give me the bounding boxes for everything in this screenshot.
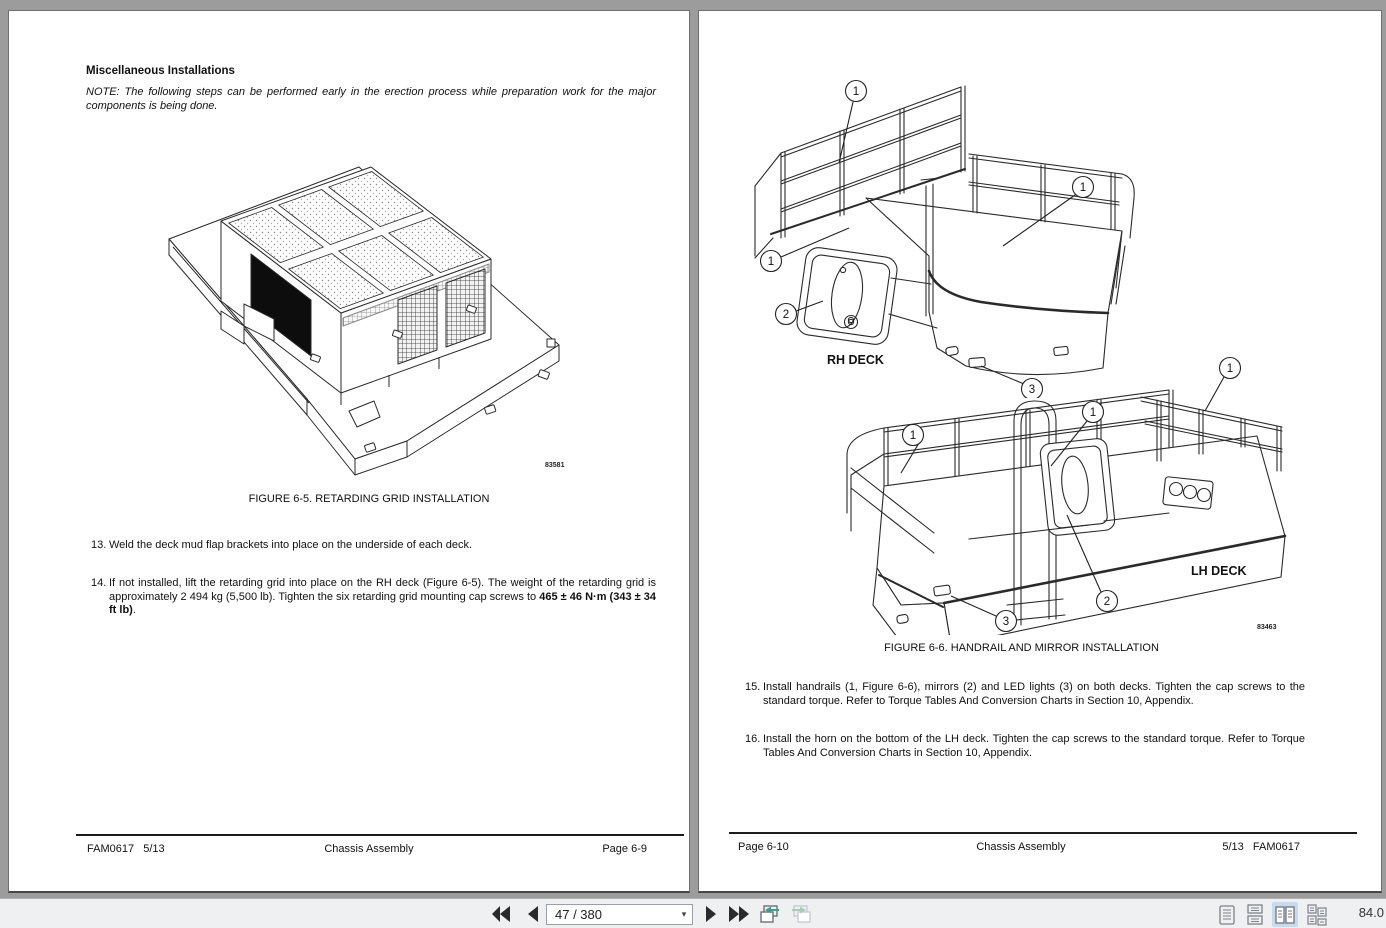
- svg-text:1: 1: [853, 86, 859, 98]
- step-14-number: 14.: [91, 577, 109, 618]
- figure-6-5-retarding-grid-drawing: 83581: [159, 159, 579, 491]
- step-16-number: 16.: [745, 733, 763, 760]
- svg-text:1: 1: [1227, 363, 1233, 375]
- footer-doc-id: 5/13 FAM0617: [1222, 841, 1300, 853]
- first-page-button[interactable]: [488, 903, 512, 925]
- step-13-text: Weld the deck mud flap brackets into pla…: [109, 539, 653, 553]
- last-page-icon: [728, 903, 750, 925]
- two-page-icon: [1274, 904, 1296, 926]
- footer-section: Chassis Assembly: [324, 843, 413, 855]
- svg-text:3: 3: [1003, 616, 1009, 628]
- svg-text:2: 2: [1104, 596, 1110, 608]
- two-page-continuous-icon: [1306, 904, 1328, 926]
- continuous-scroll-icon: [1245, 904, 1265, 926]
- footer-rule: [76, 834, 684, 836]
- next-view-icon: [789, 903, 813, 925]
- page-number-value[interactable]: 47 / 380: [547, 907, 676, 922]
- last-page-button[interactable]: [727, 903, 751, 925]
- document-canvas: Miscellaneous Installations NOTE: The fo…: [0, 0, 1386, 898]
- step-14: 14. If not installed, lift the retarding…: [91, 577, 656, 618]
- next-page-button[interactable]: [699, 903, 723, 925]
- previous-view-button[interactable]: [758, 903, 782, 925]
- step-14-text: If not installed, lift the retarding gri…: [109, 577, 656, 618]
- page-6-9: Miscellaneous Installations NOTE: The fo…: [8, 10, 690, 893]
- step-13-number: 13.: [91, 539, 109, 553]
- drawing-number-83581: 83581: [545, 462, 565, 469]
- drawing-number-83463: 83463: [1257, 624, 1277, 631]
- previous-page-icon: [522, 903, 544, 925]
- footer-page-number: Page 6-10: [738, 841, 789, 853]
- next-view-button[interactable]: [789, 903, 813, 925]
- viewer-toolbar: 47 / 380 ▾: [0, 898, 1386, 928]
- note-text: NOTE: The following steps can be perform…: [86, 85, 656, 113]
- two-page-layout-button[interactable]: [1272, 902, 1298, 927]
- page-6-10: 1 1 1 2 3 RH DECK: [698, 10, 1382, 893]
- svg-text:1: 1: [1080, 182, 1086, 194]
- previous-view-icon: [758, 903, 782, 925]
- next-page-icon: [700, 903, 722, 925]
- chevron-down-icon[interactable]: ▾: [676, 909, 692, 920]
- svg-text:1: 1: [910, 430, 916, 442]
- page-number-combobox[interactable]: 47 / 380 ▾: [546, 904, 693, 925]
- single-page-layout-button[interactable]: [1214, 902, 1240, 927]
- footer-doc-id: FAM0617 5/13: [87, 843, 165, 855]
- step-13: 13. Weld the deck mud flap brackets into…: [91, 539, 653, 553]
- figure-6-5-caption: FIGURE 6-5. RETARDING GRID INSTALLATION: [29, 493, 709, 505]
- single-page-icon: [1217, 904, 1237, 926]
- lh-deck-label: LH DECK: [1191, 564, 1247, 578]
- previous-page-button[interactable]: [521, 903, 545, 925]
- footer-rule: [729, 832, 1357, 834]
- step-15-text: Install handrails (1, Figure 6-6), mirro…: [763, 681, 1305, 708]
- step-16-text: Install the horn on the bottom of the LH…: [763, 733, 1305, 760]
- svg-text:1: 1: [768, 256, 774, 268]
- svg-text:2: 2: [783, 309, 789, 321]
- two-page-continuous-layout-button[interactable]: [1304, 902, 1330, 927]
- rh-deck-drawing: 1 1 1 2 3 RH DECK: [741, 66, 1151, 398]
- figure-6-6-caption: FIGURE 6-6. HANDRAIL AND MIRROR INSTALLA…: [699, 642, 1344, 654]
- step-15-number: 15.: [745, 681, 763, 708]
- first-page-icon: [489, 903, 511, 925]
- section-heading: Miscellaneous Installations: [86, 65, 235, 77]
- zoom-level-value[interactable]: 84.0: [1359, 905, 1384, 920]
- continuous-layout-button[interactable]: [1242, 902, 1268, 927]
- footer-section: Chassis Assembly: [976, 841, 1065, 853]
- step-16: 16. Install the horn on the bottom of th…: [745, 733, 1305, 760]
- svg-text:1: 1: [1090, 407, 1096, 419]
- step-15: 15. Install handrails (1, Figure 6-6), m…: [745, 681, 1305, 708]
- footer-page-number: Page 6-9: [602, 843, 647, 855]
- lh-deck-drawing: 1 1 1 2 3 LH DECK 83463: [839, 353, 1294, 635]
